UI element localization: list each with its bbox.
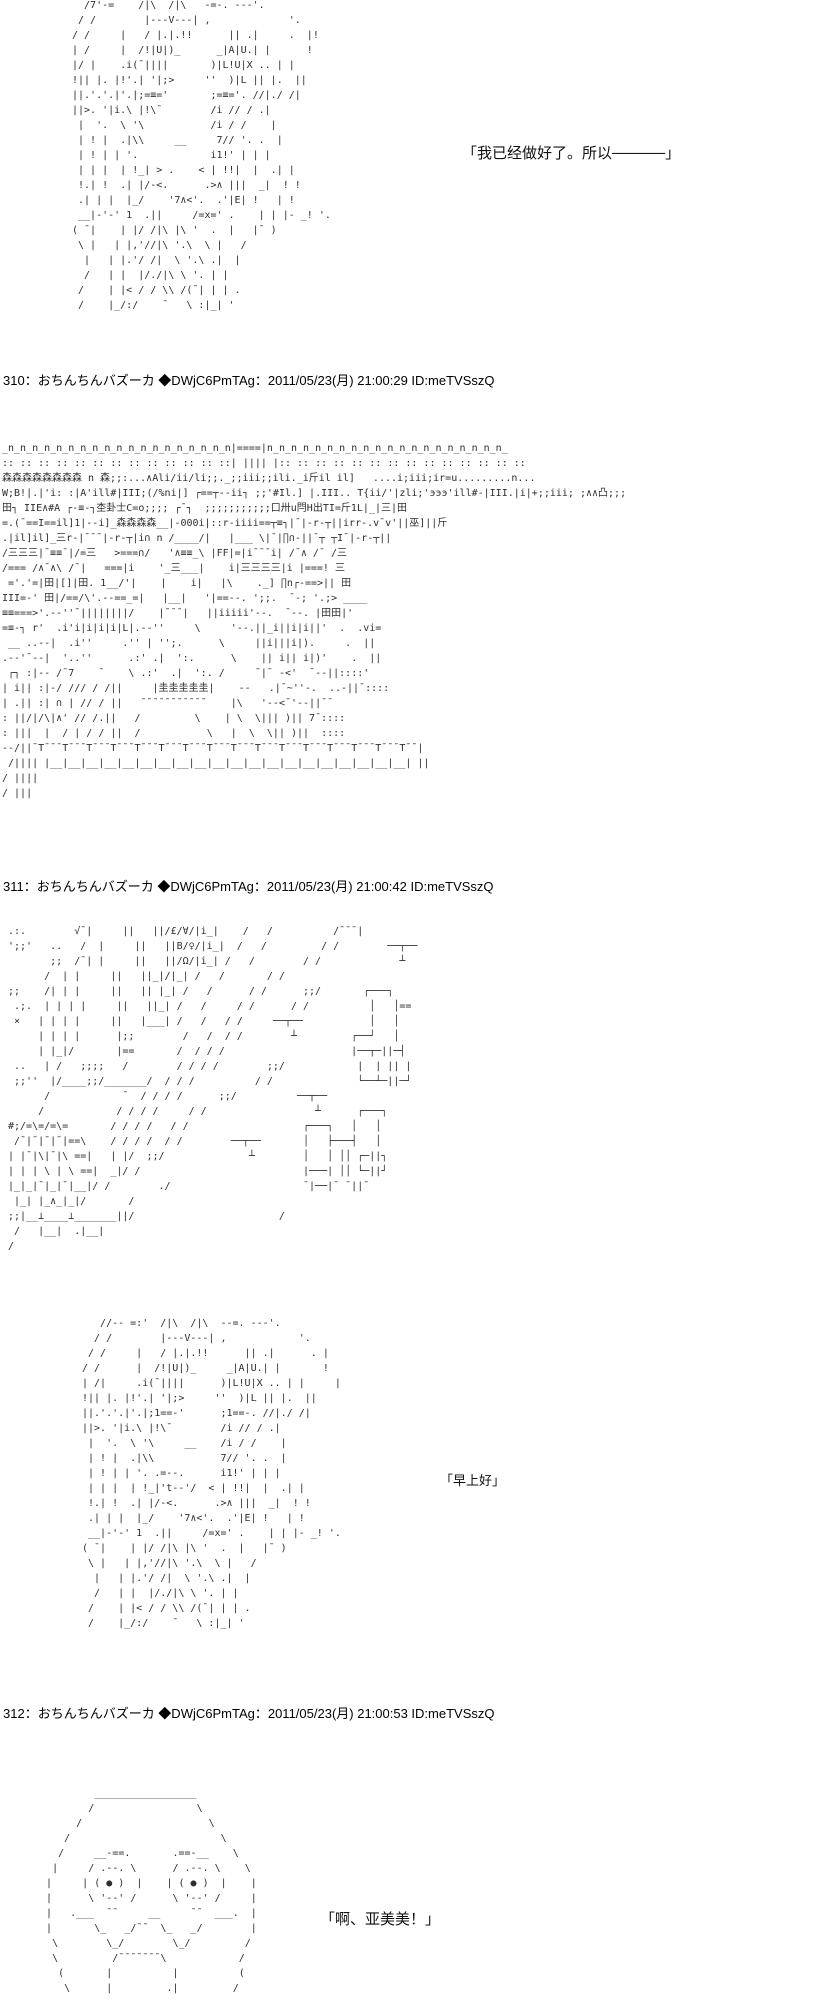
aa-room-interior: .:. √¯| || ||/£/∀/|i_| / / /¯¯¯| ';;' ..… — [8, 924, 417, 1254]
aa-town-scene: _n_n_n_n_n_n_n_n_n_n_n_n_n_n_n_n_n_n_n|=… — [2, 441, 626, 801]
aa-face-closeup: _________________ / \ / \ / \ / __-==. .… — [28, 1786, 257, 1996]
aa-character-standing-1: /7'-= /|\ /|\ -=-. ---'. / / |---V---| ,… — [72, 0, 331, 313]
thread-page: /7'-= /|\ /|\ -=-. ---'. / / |---V---| ,… — [0, 0, 828, 2000]
post-header-311: 311：おちんちんバズーカ ◆DWjC6PmTAg：2011/05/23(月) … — [3, 876, 494, 895]
dialogue-text-3: 「啊、亚美美！」 — [320, 1908, 440, 1929]
post-header-310: 310：おちんちんバズーカ ◆DWjC6PmTAg：2011/05/23(月) … — [3, 370, 495, 389]
aa-character-standing-2: //-- =:' /|\ /|\ --=. ---'. / / |---V---… — [82, 1316, 341, 1631]
dialogue-text-2: 「早上好」 — [440, 1470, 505, 1489]
dialogue-text-1: 「我已经做好了。所以─────」 — [462, 142, 680, 163]
post-header-312: 312：おちんちんバズーカ ◆DWjC6PmTAg：2011/05/23(月) … — [3, 1703, 495, 1722]
